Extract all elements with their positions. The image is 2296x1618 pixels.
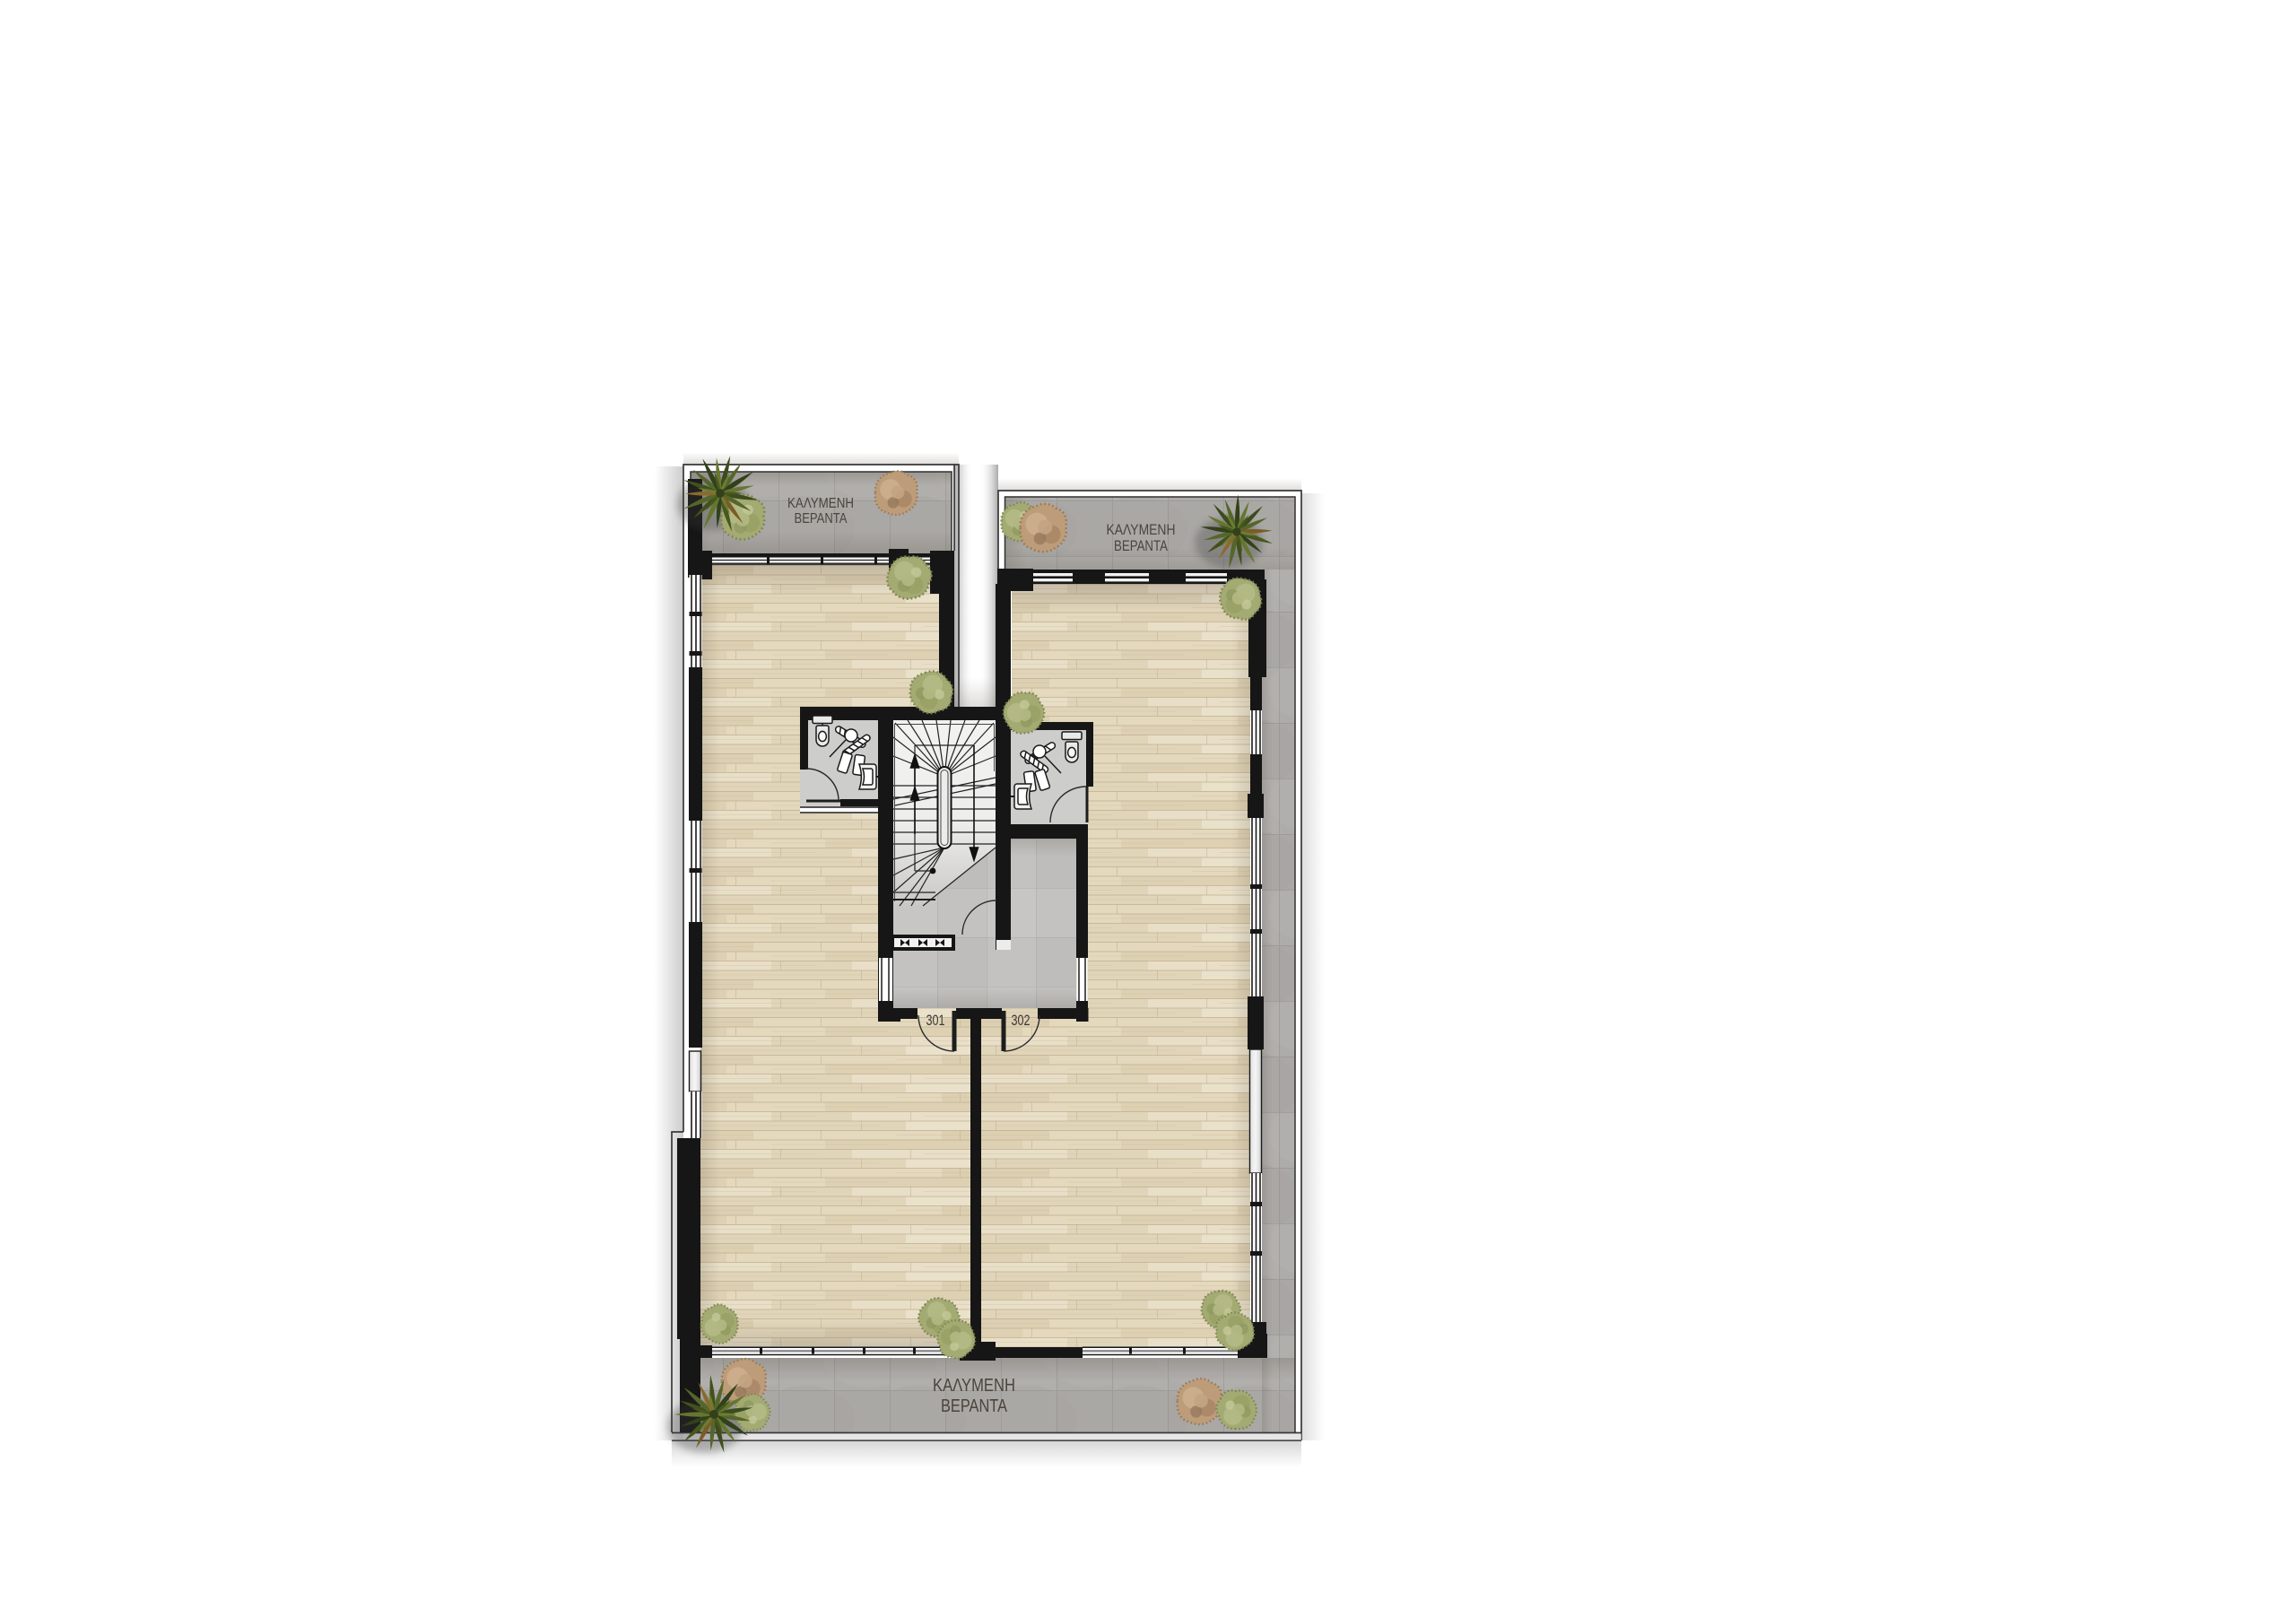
svg-text:ΒΕΡΑΝΤΑ: ΒΕΡΑΝΤΑ: [941, 1396, 1008, 1416]
svg-text:ΒΕΡΑΝΤΑ: ΒΕΡΑΝΤΑ: [795, 511, 848, 526]
svg-text:ΒΕΡΑΝΤΑ: ΒΕΡΑΝΤΑ: [1114, 537, 1169, 554]
svg-text:ΚΑΛΥΜΕΝΗ: ΚΑΛΥΜΕΝΗ: [1107, 521, 1176, 538]
svg-text:ΚΑΛΥΜΕΝΗ: ΚΑΛΥΜΕΝΗ: [787, 496, 854, 511]
svg-text:ΚΑΛΥΜΕΝΗ: ΚΑΛΥΜΕΝΗ: [933, 1376, 1015, 1396]
svg-text:301: 301: [926, 1013, 945, 1029]
svg-text:302: 302: [1012, 1013, 1031, 1029]
